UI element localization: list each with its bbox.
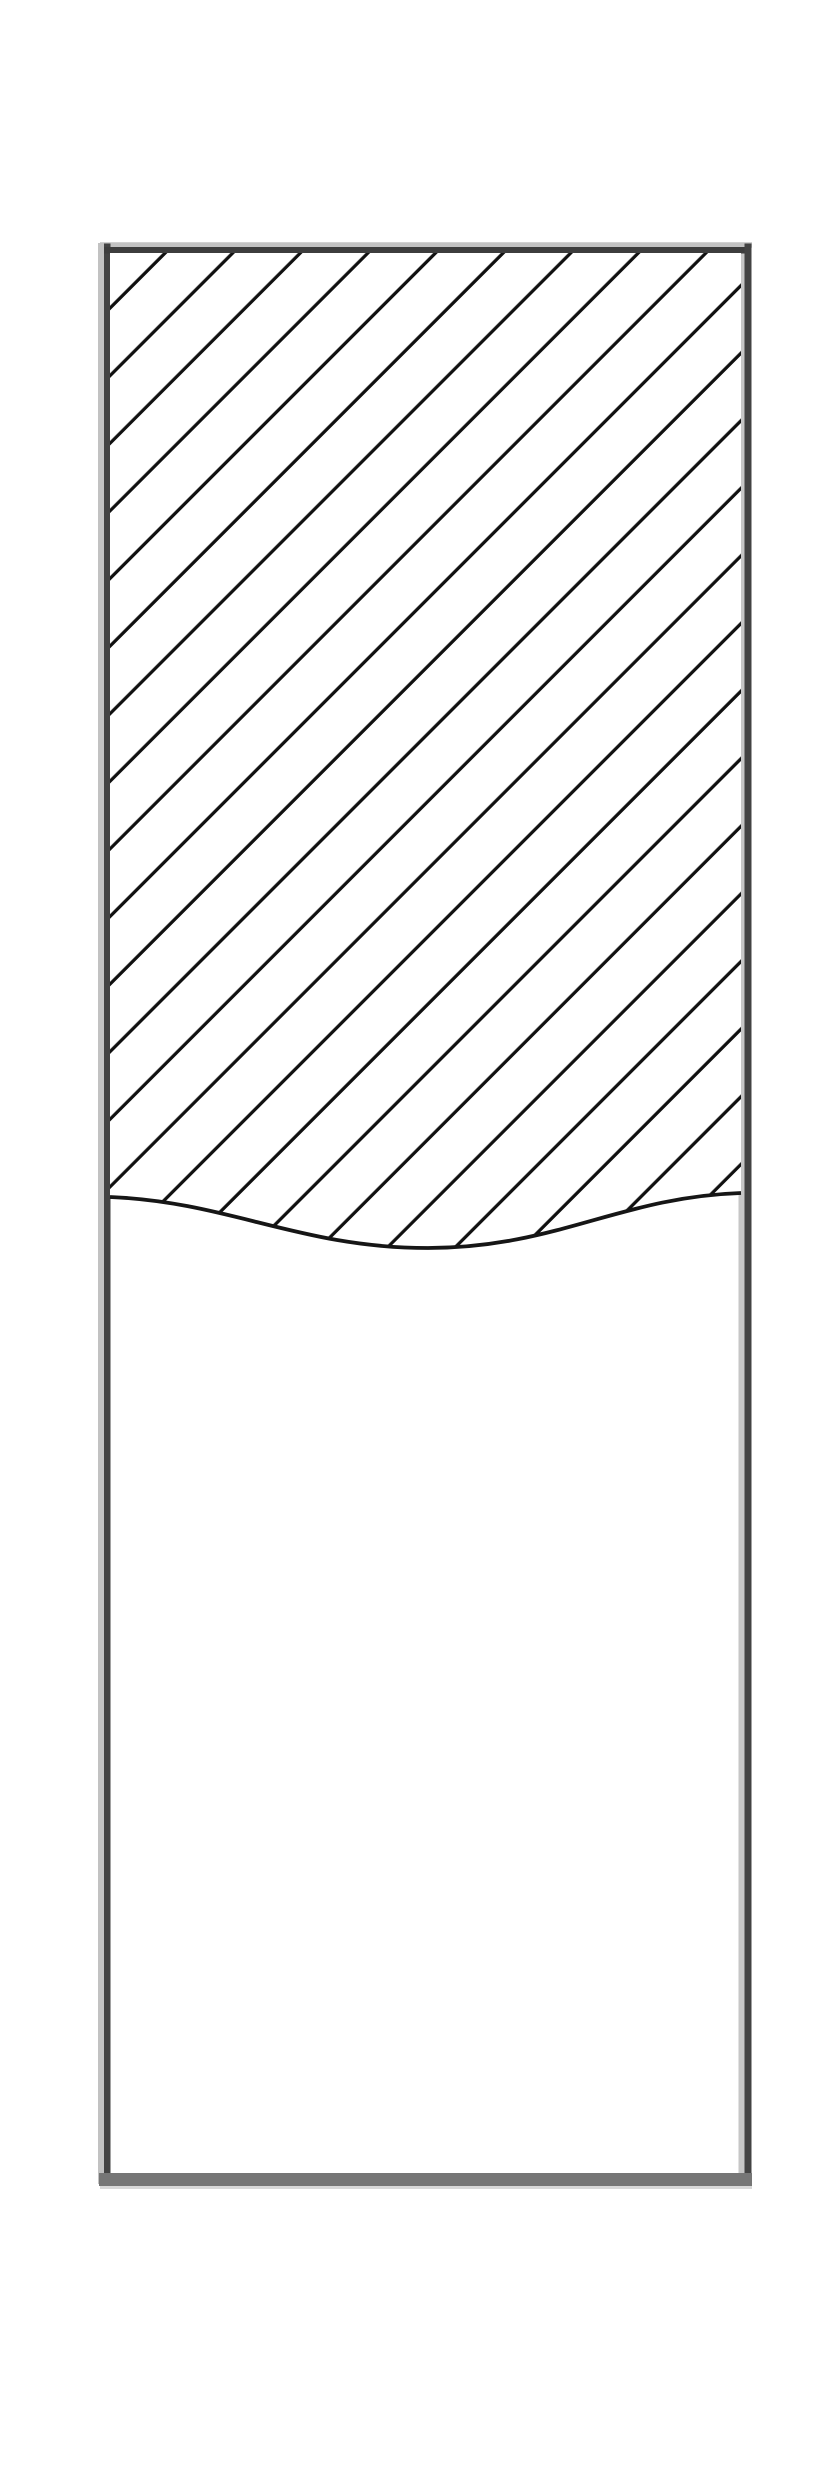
drawing-page (0, 0, 830, 2491)
section-view-drawing (0, 0, 830, 2491)
hatched-region (110, 253, 741, 1248)
